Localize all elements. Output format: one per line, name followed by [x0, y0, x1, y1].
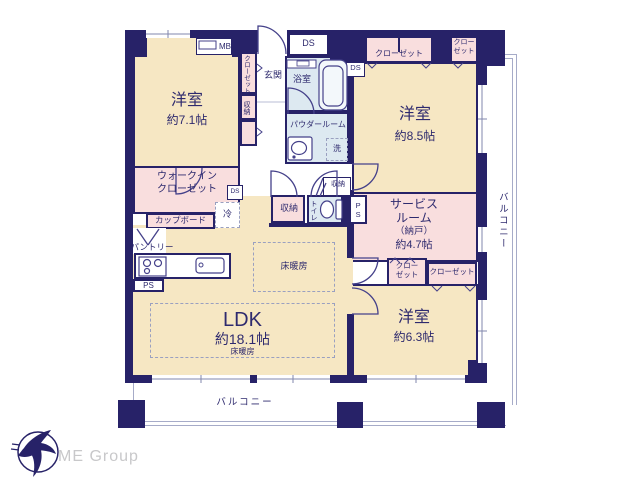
window-top-bedroom1 [146, 30, 190, 38]
bedroom1-size: 約7.1帖 [147, 114, 227, 128]
duct-space-wic-label: DS [228, 188, 242, 195]
ldk-name: LDK [150, 309, 335, 332]
ldk-door-arc [271, 171, 297, 197]
storage-center-label: 収納 [277, 203, 301, 213]
wall-left [125, 30, 133, 383]
storage-hall-label: 収納 [327, 181, 349, 189]
closet-service-b-label: クローゼット [429, 268, 475, 277]
pillar-bottom-left [118, 400, 145, 428]
balcony-bottom-label: バルコニー [207, 398, 283, 409]
closet-strip-label: クローゼット [242, 55, 249, 93]
room-bedroom-8-5 [352, 62, 478, 194]
wall-top-genkan-left [240, 30, 258, 52]
washer-label: 洗 [331, 144, 343, 153]
duct-space-top-label: DS [299, 38, 318, 48]
wall-top-thin-right [365, 30, 478, 36]
floor-plan-canvas: 洋室 約7.1帖 洋室 約8.5帖 洋室 約6.3帖 LDK 約18.1帖 床暖… [0, 0, 640, 480]
closet-top-corner-line2: ゼット [452, 48, 476, 56]
duct-space-bedroom2-label: DS [348, 64, 363, 73]
floor-heating-1-label: 床暖房 [253, 261, 335, 271]
bathroom-label: 浴室 [288, 74, 316, 84]
bedroom1-name: 洋室 [150, 92, 224, 110]
window-bottom-bedroom3 [367, 375, 465, 383]
wic-line1: ウォークイン [140, 171, 234, 183]
balcony-bottom-outline-inner [133, 383, 502, 422]
bedroom2-name: 洋室 [378, 106, 452, 124]
meter-box-label: MB [213, 42, 231, 51]
ldk-size: 約18.1帖 [150, 331, 335, 347]
kitchen-counter [134, 253, 231, 279]
service-room-line1: サービス [382, 198, 446, 212]
window-bottom-ldk-1 [152, 375, 250, 383]
service-room-size: 約4.7帖 [382, 239, 446, 252]
wall-between-top-closets [433, 36, 450, 63]
wall-top-mb-right [232, 30, 240, 57]
window-right-bedroom2 [478, 85, 487, 153]
genkan-label: 玄関 [258, 70, 288, 80]
window-right-bedroom3 [478, 300, 487, 363]
closet-service-a-line2: ゼット [391, 271, 423, 280]
closet-strip-divider2 [240, 118, 257, 122]
cupboard-label: カップボード [150, 216, 211, 226]
pantry-label: パントリー [130, 243, 174, 253]
toilet-label: トイレ [309, 198, 317, 222]
pillar-bottom-mid [337, 402, 363, 428]
storage-strip-label: 収納 [242, 98, 250, 118]
balcony-right-label: バルコニー [496, 192, 507, 250]
wic-line2: クローゼット [140, 184, 234, 196]
front-door-gap [258, 30, 287, 56]
service-room-line2: ルーム [382, 212, 446, 226]
bedroom3-size: 約6.3帖 [374, 331, 454, 345]
pipe-space-service-label: PS [353, 199, 362, 221]
wall-corner-top-left [125, 30, 147, 57]
wall-below-toilet [269, 223, 347, 227]
powder-room-label: パウダールーム [287, 120, 349, 129]
pipe-space-kitchen-label: PS [139, 281, 158, 290]
bedroom2-size: 約8.5帖 [375, 130, 455, 144]
closet-top-corner-line1: クロー [452, 39, 476, 47]
window-right-service [478, 227, 487, 252]
ldk-floor-heating: 床暖房 [150, 347, 335, 356]
bedroom3-name: 洋室 [377, 309, 451, 327]
fridge-label: 冷 [221, 209, 234, 219]
closet-top-double-label: クローゼット [367, 49, 431, 58]
pillar-bottom-right [477, 402, 505, 428]
room-ldk-hall-patch [236, 196, 272, 226]
service-room-line3: （納戸） [382, 227, 446, 238]
company-logo-text: ME Group [58, 448, 139, 466]
wall-ldk-bedroom3 [347, 314, 354, 377]
wall-corner-bedroom3 [468, 360, 487, 383]
window-bottom-ldk-2 [257, 375, 330, 383]
